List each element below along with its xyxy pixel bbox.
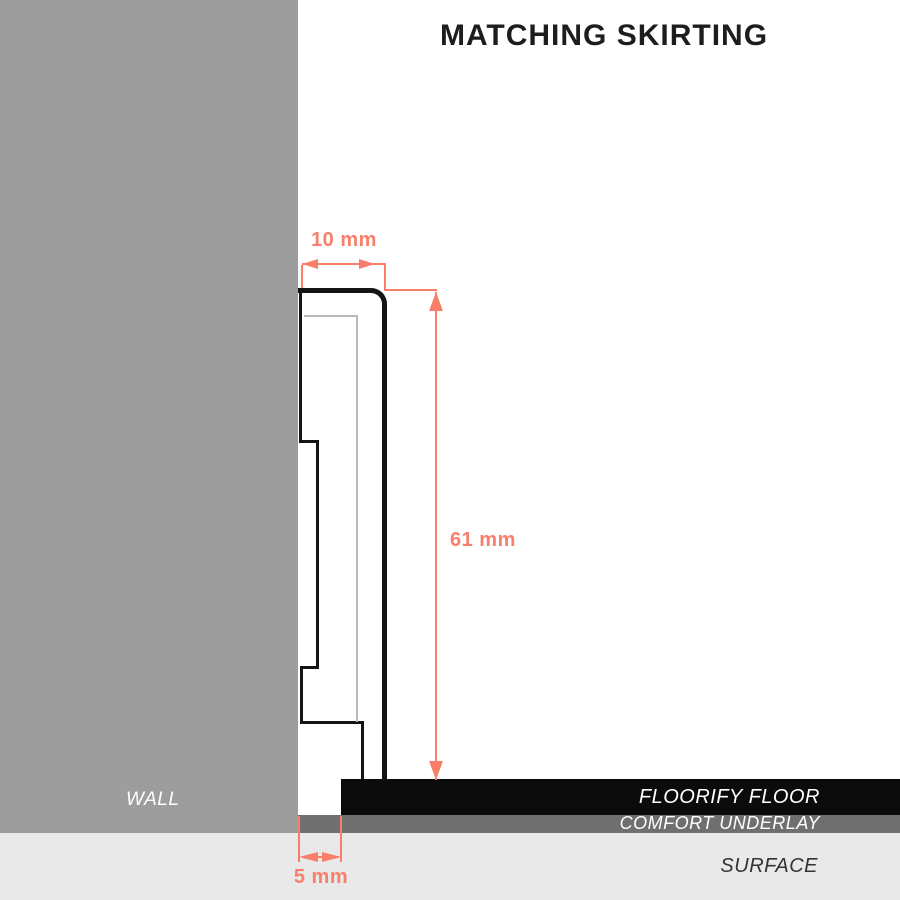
wall-layer [0, 0, 298, 833]
skirting-core-line-top [304, 315, 357, 317]
dimension-width-extension-right [384, 263, 386, 290]
arrowhead-down-icon [429, 761, 443, 780]
skirting-back-edge-middle [316, 440, 319, 669]
skirting-diagram: MATCHING SKIRTING 10 mm 61 mm 5 mm WALL … [0, 0, 900, 900]
page-title: MATCHING SKIRTING [440, 19, 768, 53]
arrowhead-right-icon [359, 259, 375, 269]
dimension-height-label: 61 mm [450, 529, 516, 552]
floor-label: FLOORIFY FLOOR [639, 786, 820, 809]
arrowhead-right-icon [322, 852, 341, 862]
surface-label: SURFACE [720, 855, 818, 878]
skirting-back-edge-lower [300, 666, 303, 723]
skirting-profile-outline [298, 288, 387, 780]
dimension-connector-line [384, 289, 437, 291]
arrowhead-left-icon [299, 852, 318, 862]
skirting-core-line-right [356, 315, 358, 722]
dimension-height-line [435, 292, 437, 780]
skirting-foot-edge [361, 721, 364, 779]
underlay-label: COMFORT UNDERLAY [620, 814, 820, 833]
skirting-back-edge-upper [299, 290, 302, 442]
dimension-width-extension-left [301, 265, 303, 288]
dimension-gap-label: 5 mm [294, 866, 348, 889]
arrowhead-up-icon [429, 292, 443, 311]
dimension-width-label: 10 mm [311, 229, 377, 252]
arrowhead-left-icon [302, 259, 318, 269]
wall-label: WALL [126, 789, 179, 811]
skirting-bottom-shelf [300, 721, 364, 724]
